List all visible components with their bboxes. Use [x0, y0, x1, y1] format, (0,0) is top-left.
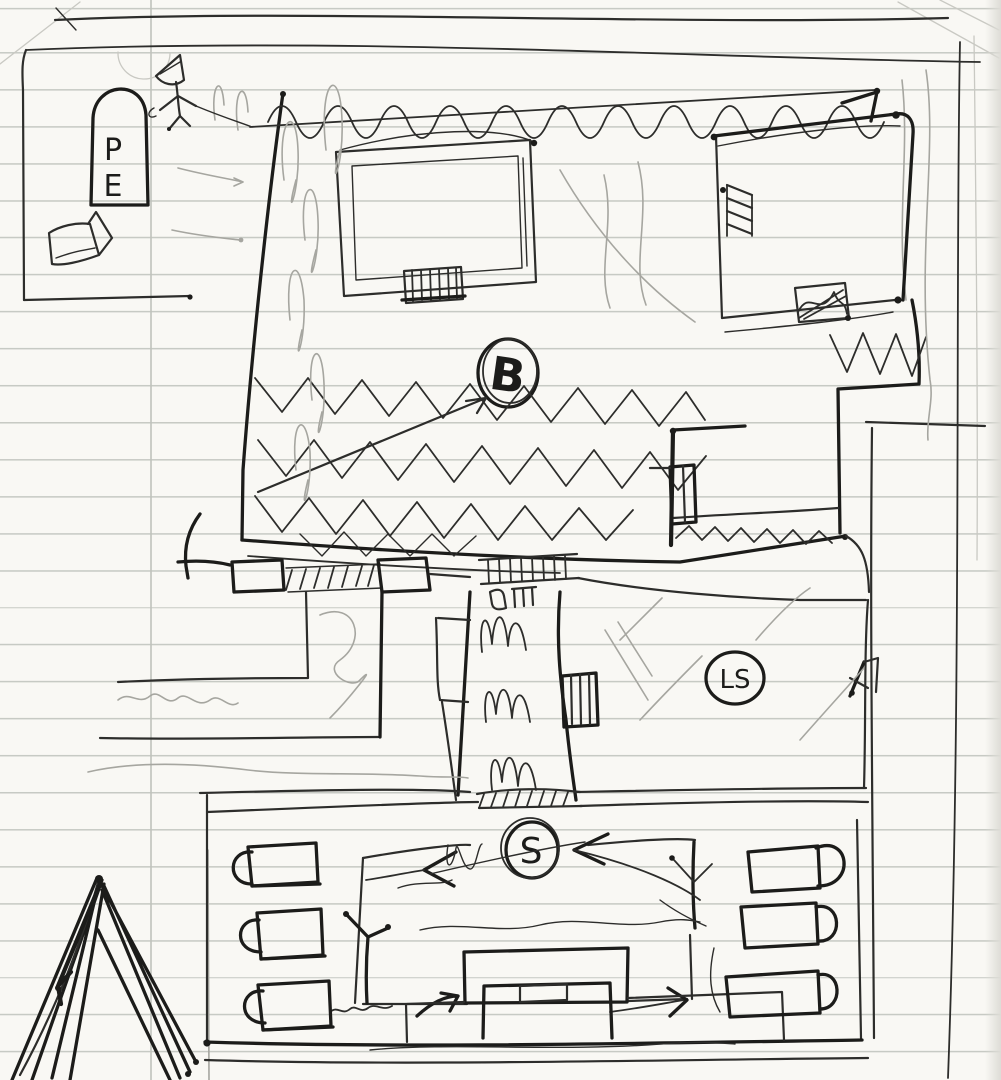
- pencil-arrows: [172, 86, 248, 242]
- hall-wave-lines: [255, 106, 926, 556]
- bottom-wall-2: [205, 1058, 868, 1063]
- floor-plan-sketch: P E: [0, 0, 1001, 1080]
- ls-room-right-wall: [864, 600, 868, 788]
- tv-stand-hatch: [402, 267, 465, 303]
- hall-circle-label: B: [258, 339, 538, 492]
- corridor-squiggles: [481, 617, 652, 790]
- paper-corner-artifacts: [0, 0, 999, 1080]
- pe-sign: P E: [91, 89, 148, 205]
- entry-room: P E: [49, 55, 248, 265]
- corridor-right-wall: [558, 592, 576, 800]
- right-outer-wall: [871, 428, 874, 1038]
- left-outer-wall: [22, 50, 26, 300]
- assembly-circle-label: S: [366, 818, 700, 900]
- ls-circle-label: LS: [706, 652, 764, 704]
- desk-with-chair: [748, 846, 844, 892]
- couch: [49, 212, 112, 265]
- door-block-left: [232, 560, 284, 592]
- corridor-left-wall: [458, 592, 470, 795]
- left-room-bottom-wall: [24, 296, 190, 300]
- desk-column-right: [726, 846, 844, 1017]
- corridor-bottom-hatch: [477, 789, 582, 808]
- sign-letter-e: E: [104, 169, 123, 204]
- bottom-top-wall-left: [200, 790, 470, 793]
- ls-pencil-hatches: [620, 588, 864, 740]
- ls-room-top-wall: [578, 578, 866, 600]
- ls-room-bottom-wall: [575, 788, 866, 792]
- hall-circle-letter: B: [487, 346, 529, 404]
- ls-room: LS: [575, 588, 878, 792]
- left-mid-walls: [88, 592, 468, 778]
- corridor: [436, 592, 652, 808]
- door-block-right: [378, 558, 430, 592]
- right-edge-line: [948, 42, 960, 1078]
- bottom-right-wall: [857, 820, 861, 1038]
- notebook-paper: P E: [0, 0, 1001, 1080]
- scribbled-box: [795, 283, 851, 322]
- door-hatch: [727, 185, 752, 236]
- desk-column-left: [233, 843, 333, 1030]
- mid-band-doors: [178, 514, 866, 609]
- bottom-section: S: [200, 790, 868, 1063]
- desk-with-chair: [233, 843, 320, 886]
- top-wall-line-1: [55, 16, 948, 20]
- ls-circle-letters: LS: [720, 665, 751, 695]
- stick-figure-icon: [149, 55, 196, 131]
- sign-letter-p: P: [104, 133, 122, 168]
- corner-scribble: [12, 875, 199, 1080]
- right-step-wall: [866, 422, 985, 426]
- hall-right-step-wall: [838, 300, 919, 533]
- hatched-walkway-left: [286, 564, 382, 592]
- storage-room: [650, 426, 838, 545]
- top-right-room: [711, 111, 914, 332]
- bottom-wall-1: [205, 1040, 862, 1045]
- hall-left-wall: [242, 93, 283, 540]
- desk-with-chair: [241, 909, 326, 959]
- desk-with-chair: [245, 981, 334, 1030]
- arrow-left-of-s: [366, 842, 585, 886]
- tv-board: [336, 132, 537, 303]
- small-marks: [490, 587, 536, 609]
- flag-figure-icon: [849, 658, 878, 696]
- desk-with-chair: [741, 903, 837, 948]
- main-hall: B: [196, 70, 931, 592]
